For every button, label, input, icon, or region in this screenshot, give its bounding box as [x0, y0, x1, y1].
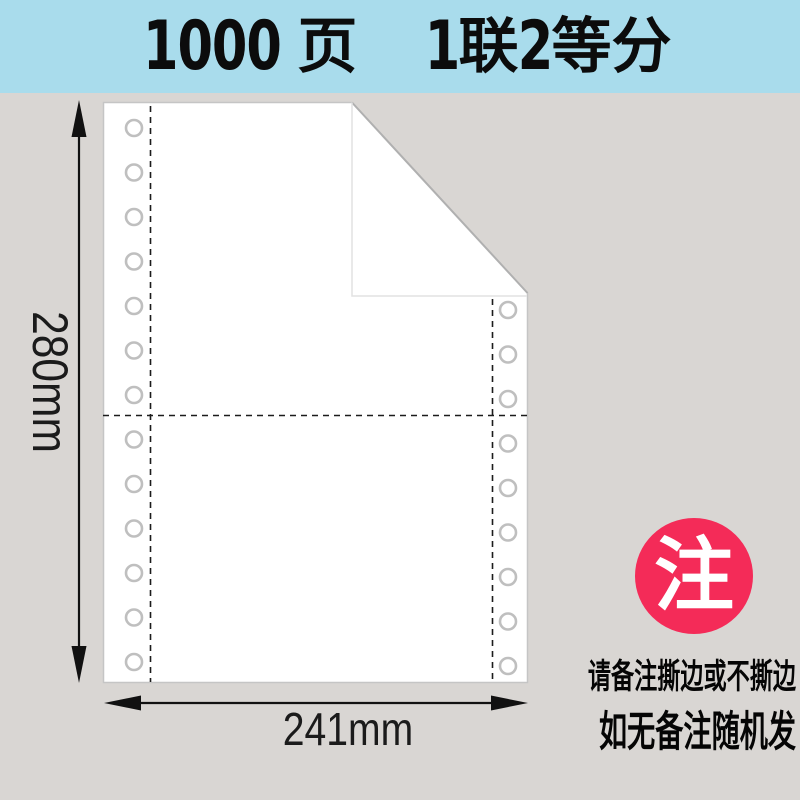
sprocket-holes-right: [500, 302, 516, 674]
note-badge-text: 注: [654, 536, 734, 616]
arrow-up-icon: [72, 100, 87, 137]
note-badge: 注: [635, 518, 753, 634]
footnote-line-1: 请备注撕边或不撕边: [588, 660, 796, 696]
footnote: 请备注撕边或不撕边 如无备注随机发: [490, 660, 796, 754]
height-dimension-label: 280mm: [25, 311, 75, 453]
paper-sheet: [104, 103, 528, 683]
product-image: 1000 页 1 联 2 等分: [0, 0, 800, 800]
footnote-line-2: 如无备注随机发: [591, 710, 796, 754]
arrow-left-icon: [104, 696, 141, 711]
arrow-down-icon: [72, 646, 87, 683]
width-dimension-label: 241mm: [283, 706, 413, 752]
